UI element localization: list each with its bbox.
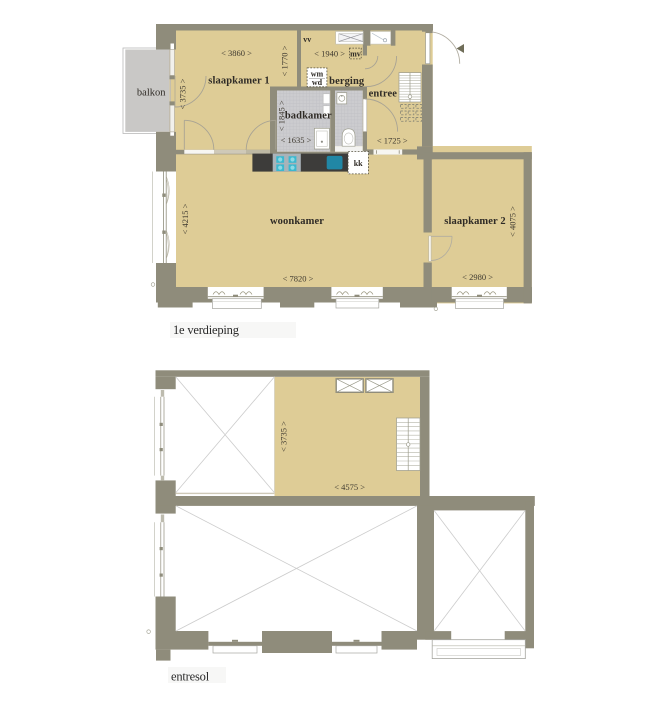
svg-text:< 4075 >: < 4075 > [508, 206, 518, 237]
svg-text:< 1635 >: < 1635 > [281, 135, 312, 145]
svg-text:< 4575 >: < 4575 > [334, 482, 365, 492]
svg-text:wd: wd [312, 78, 323, 87]
svg-text:kk: kk [354, 159, 363, 168]
svg-text:< 1845 >: < 1845 > [277, 100, 287, 131]
svg-text:entresol: entresol [171, 670, 210, 684]
svg-text:berging: berging [329, 76, 365, 87]
svg-text:< 1940 >: < 1940 > [314, 49, 345, 59]
svg-text:< 3735 >: < 3735 > [279, 421, 289, 452]
svg-text:wm: wm [311, 69, 324, 78]
svg-text:entree: entree [369, 89, 398, 100]
svg-text:woonkamer: woonkamer [270, 216, 324, 227]
svg-text:< 4215 >: < 4215 > [180, 203, 190, 234]
svg-text:slaapkamer 2: slaapkamer 2 [444, 216, 505, 227]
svg-text:< 1770 >: < 1770 > [280, 45, 290, 76]
svg-text:< 7820 >: < 7820 > [283, 274, 314, 284]
svg-text:badkamer: badkamer [285, 111, 332, 122]
svg-text:< 2980 >: < 2980 > [462, 272, 493, 282]
svg-text:slaapkamer 1: slaapkamer 1 [208, 76, 269, 87]
svg-text:balkon: balkon [137, 88, 166, 99]
svg-text:< 3860 >: < 3860 > [221, 48, 252, 58]
svg-text:mv: mv [350, 50, 361, 59]
svg-text:< 1725 >: < 1725 > [377, 135, 408, 145]
svg-text:1e verdieping: 1e verdieping [173, 323, 240, 337]
svg-text:vv: vv [303, 35, 311, 44]
svg-text:< 3735 >: < 3735 > [177, 78, 187, 109]
